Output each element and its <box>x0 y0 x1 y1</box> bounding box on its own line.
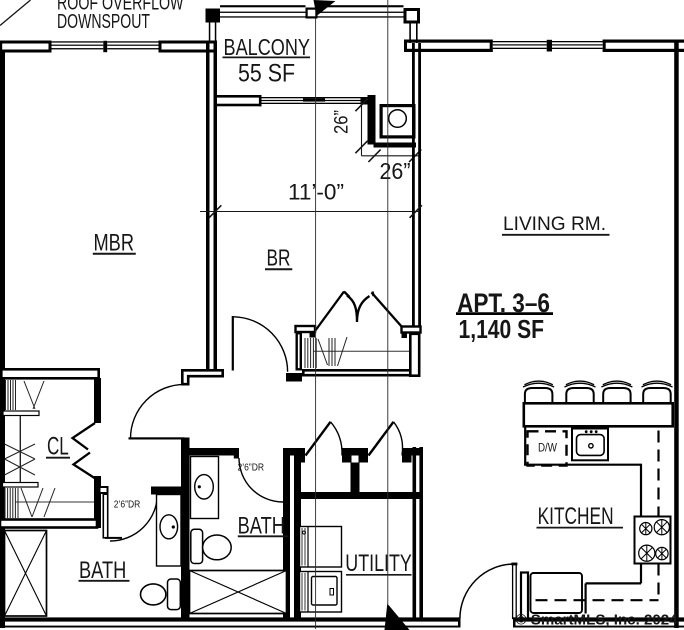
svg-text:MBR: MBR <box>94 229 135 256</box>
svg-text:26”: 26” <box>332 110 353 134</box>
svg-text:55 SF: 55 SF <box>238 60 295 88</box>
svg-text:2’6”DR: 2’6”DR <box>114 499 141 510</box>
svg-text:© SmartMLS, Inc. 2024: © SmartMLS, Inc. 2024 <box>516 612 679 629</box>
svg-text:D/W: D/W <box>538 442 557 454</box>
svg-text:KITCHEN: KITCHEN <box>538 503 614 530</box>
svg-text:UTILITY: UTILITY <box>345 550 412 577</box>
svg-text:LIVING RM.: LIVING RM. <box>503 214 606 235</box>
svg-text:26”: 26” <box>380 158 411 184</box>
svg-text:BATH: BATH <box>79 557 126 584</box>
svg-text:1,140 SF: 1,140 SF <box>459 314 545 344</box>
svg-text:CL: CL <box>47 432 69 460</box>
svg-text:2’6”DR: 2’6”DR <box>238 463 265 474</box>
svg-text:BALCONY: BALCONY <box>224 34 311 60</box>
svg-text:BR: BR <box>267 244 291 270</box>
svg-text:DOWNSPOUT: DOWNSPOUT <box>57 11 150 33</box>
